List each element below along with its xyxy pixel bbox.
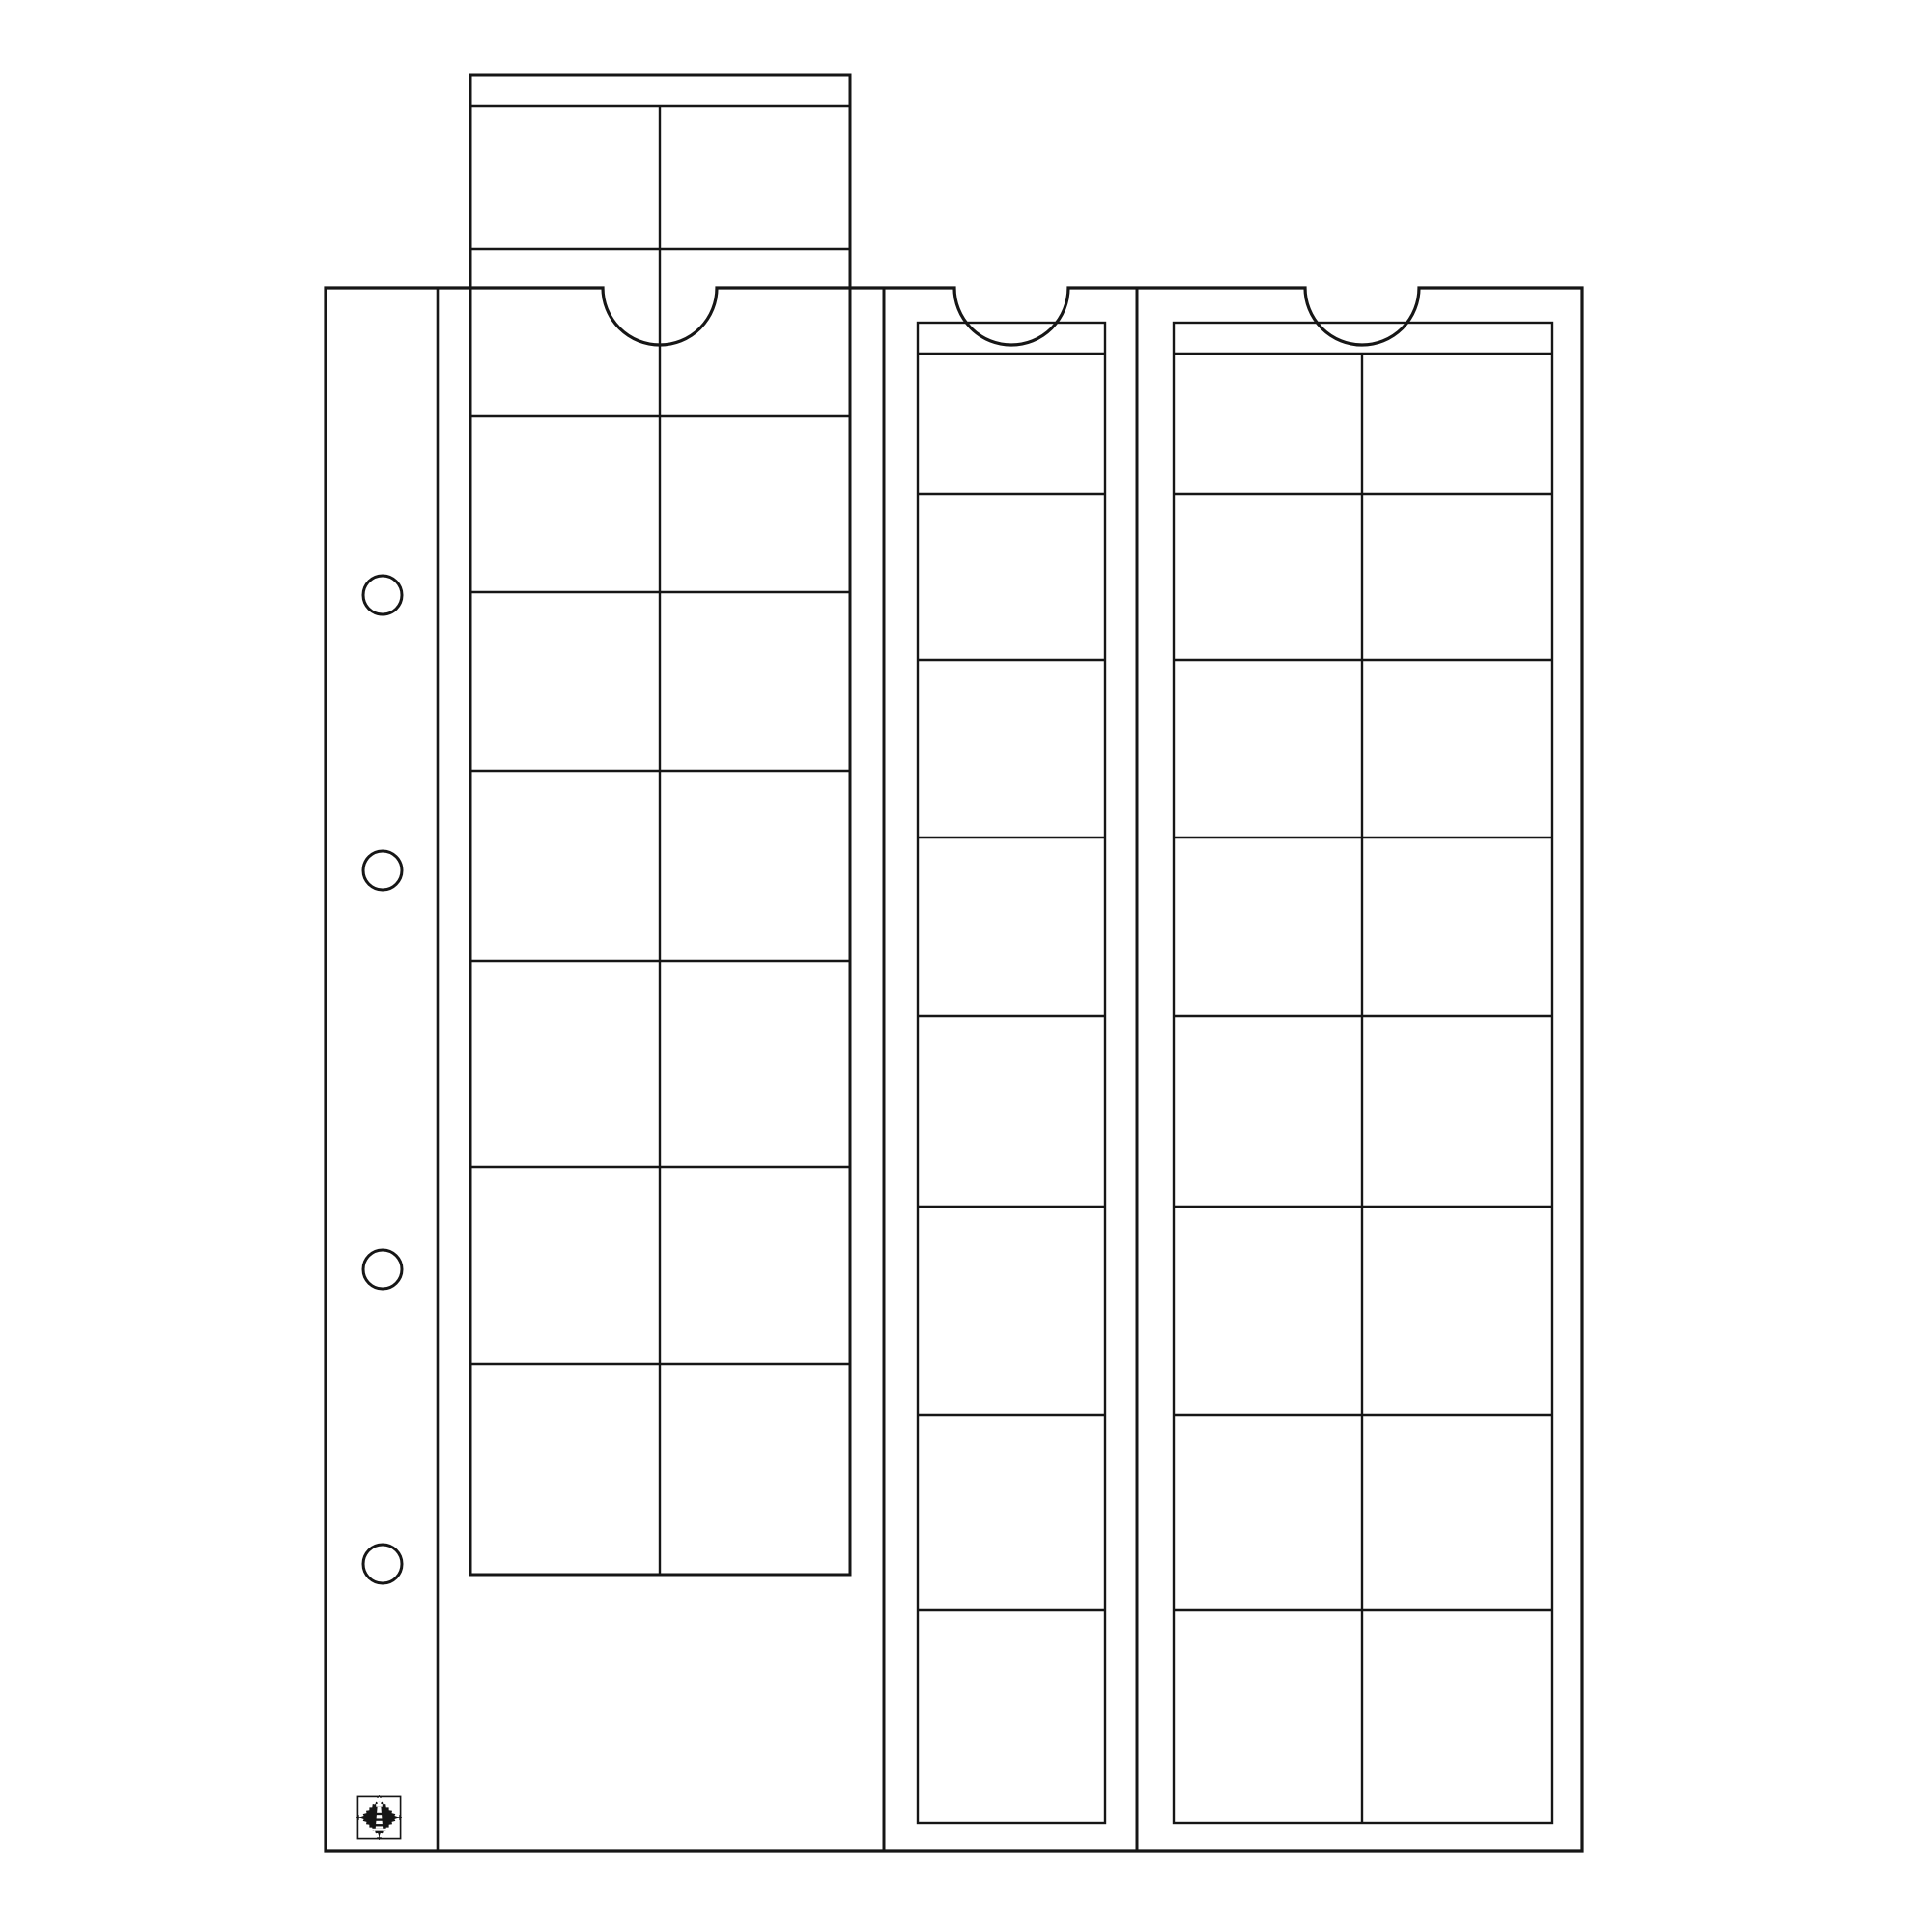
- binder-hole: [363, 1545, 402, 1583]
- lighthouse-lantern: [378, 1801, 382, 1804]
- binder-hole: [363, 851, 402, 890]
- binder-hole: [363, 1250, 402, 1289]
- lighthouse-base-bar: [366, 1829, 391, 1831]
- coin-sheet-page: [0, 0, 1932, 1932]
- binder-hole: [363, 576, 402, 614]
- lighthouse-band: [375, 1813, 384, 1815]
- lighthouse-logo: [356, 1795, 402, 1840]
- album-page-outline: [326, 288, 1582, 1851]
- lighthouse-band: [374, 1818, 384, 1820]
- coin-sheet-illustration: [0, 0, 1932, 1932]
- lighthouse-band: [374, 1824, 384, 1826]
- lighthouse-gallery: [376, 1804, 383, 1807]
- middle-strip-inner-outline: [918, 323, 1105, 1823]
